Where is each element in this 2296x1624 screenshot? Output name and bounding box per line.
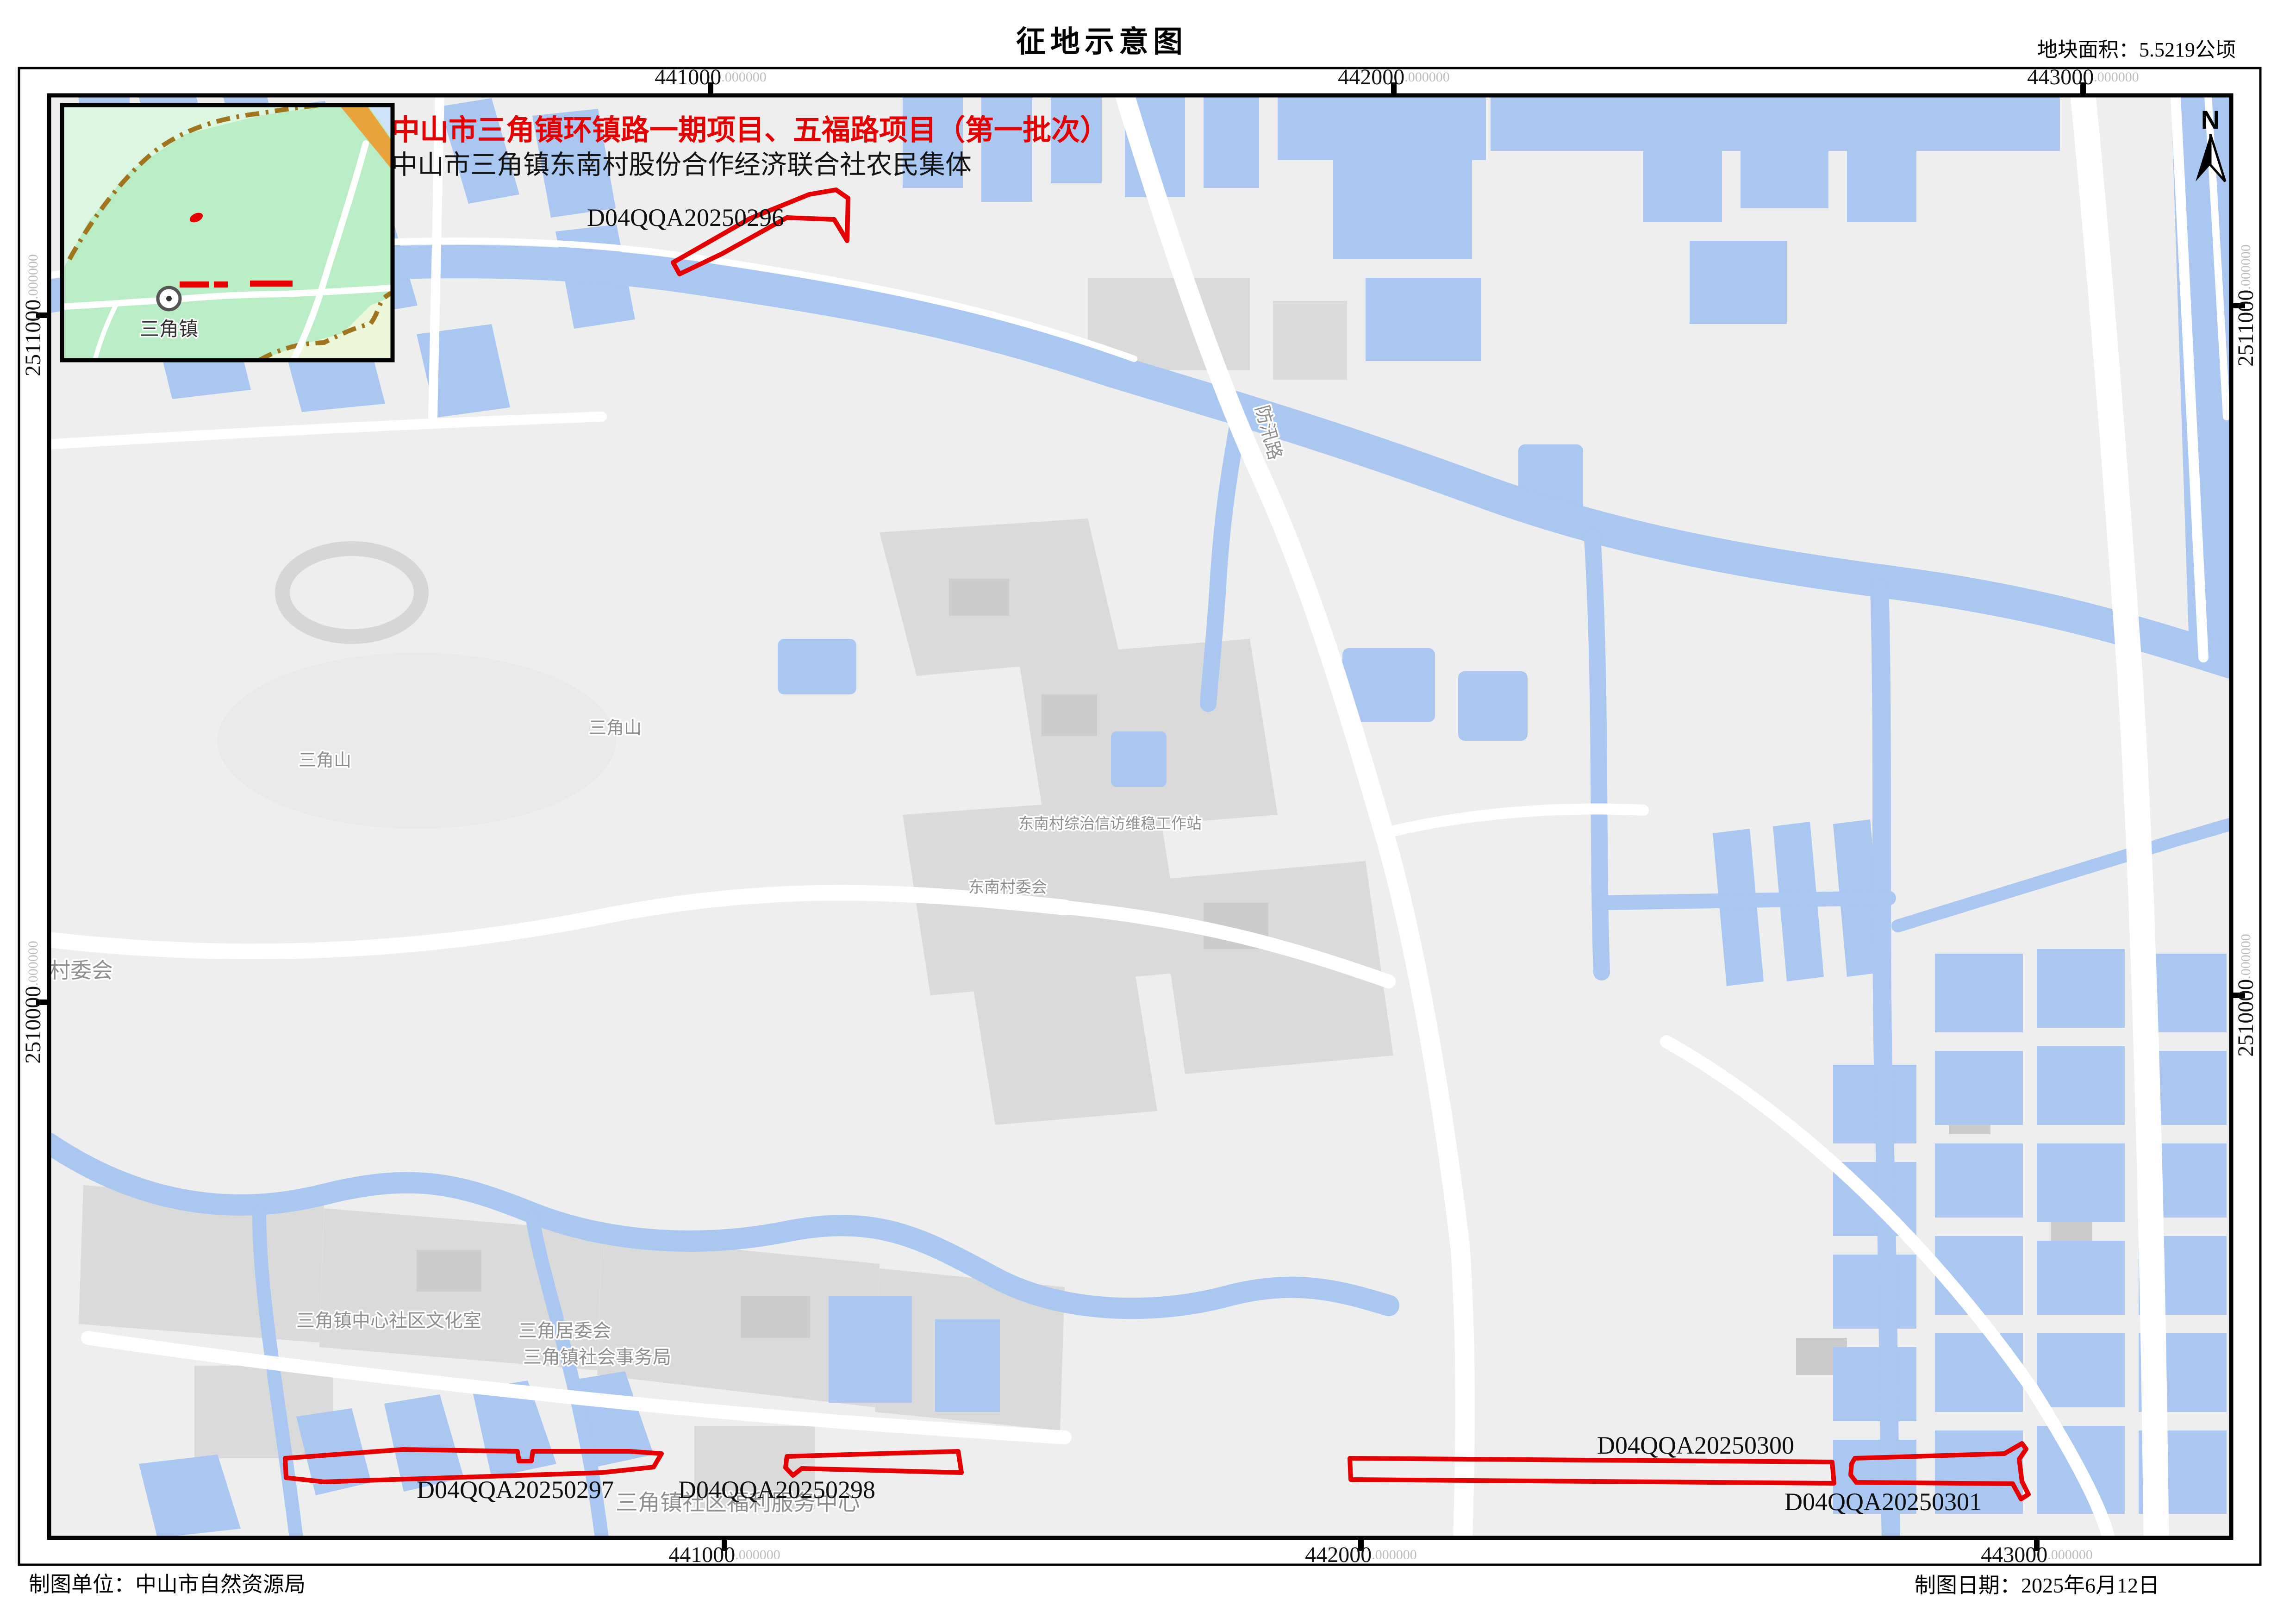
parcel-label-297: D04QQA20250297 bbox=[417, 1476, 614, 1504]
area-note: 地块面积：5.5219公顷 bbox=[2037, 38, 2236, 61]
hill-label-1: 三角山 bbox=[299, 751, 351, 770]
project-subtitle: 中山市三角镇东南村股份合作经济联合社农民集体 bbox=[391, 150, 972, 180]
sheet-canvas: 征地示意图 地块面积：5.5219公顷 bbox=[0, 0, 2296, 1624]
social-affairs-label: 三角镇社会事务局 bbox=[523, 1347, 671, 1368]
hill-label-2: 三角山 bbox=[589, 718, 642, 738]
residents-committee-label: 三角居委会 bbox=[518, 1321, 611, 1341]
project-title: 中山市三角镇环镇路一期项目、五福路项目（第一批次） bbox=[391, 114, 1109, 146]
coord-right-2511000: 2511000.000000 bbox=[2234, 244, 2258, 367]
north-arrow-label: N bbox=[2201, 105, 2220, 134]
footer-agency: 制图单位：中山市自然资源局 bbox=[29, 1573, 306, 1596]
culture-room-label: 三角镇中心社区文化室 bbox=[296, 1311, 481, 1331]
coord-bottom-441000: 441000.000000 bbox=[668, 1543, 780, 1567]
parcel-label-301: D04QQA20250301 bbox=[1784, 1488, 1982, 1516]
parcel-label-296: D04QQA20250296 bbox=[587, 204, 784, 231]
footer-date: 制图日期：2025年6月12日 bbox=[1915, 1574, 2159, 1597]
map-sheet: 征地示意图 地块面积：5.5219公顷 bbox=[0, 0, 2296, 1624]
coord-right-2510000: 2510000.000000 bbox=[2234, 934, 2258, 1057]
coord-bottom-443000: 443000.000000 bbox=[1981, 1543, 2093, 1567]
workstation-label: 东南村综治信访维稳工作站 bbox=[1018, 815, 1202, 832]
parcel-label-300: D04QQA20250300 bbox=[1597, 1431, 1794, 1459]
coord-left-2511000: 2511000.000000 bbox=[21, 254, 45, 376]
coord-bottom-442000: 442000.000000 bbox=[1305, 1543, 1417, 1567]
parcel-label-298: D04QQA20250298 bbox=[678, 1476, 875, 1504]
village-committee-label: 东南村委会 bbox=[968, 879, 1047, 896]
inset-map: 三角镇 bbox=[62, 103, 393, 360]
page-title: 征地示意图 bbox=[1016, 25, 1187, 58]
inset-town-label: 三角镇 bbox=[140, 318, 198, 340]
coord-left-2510000: 2510000.000000 bbox=[21, 941, 45, 1064]
